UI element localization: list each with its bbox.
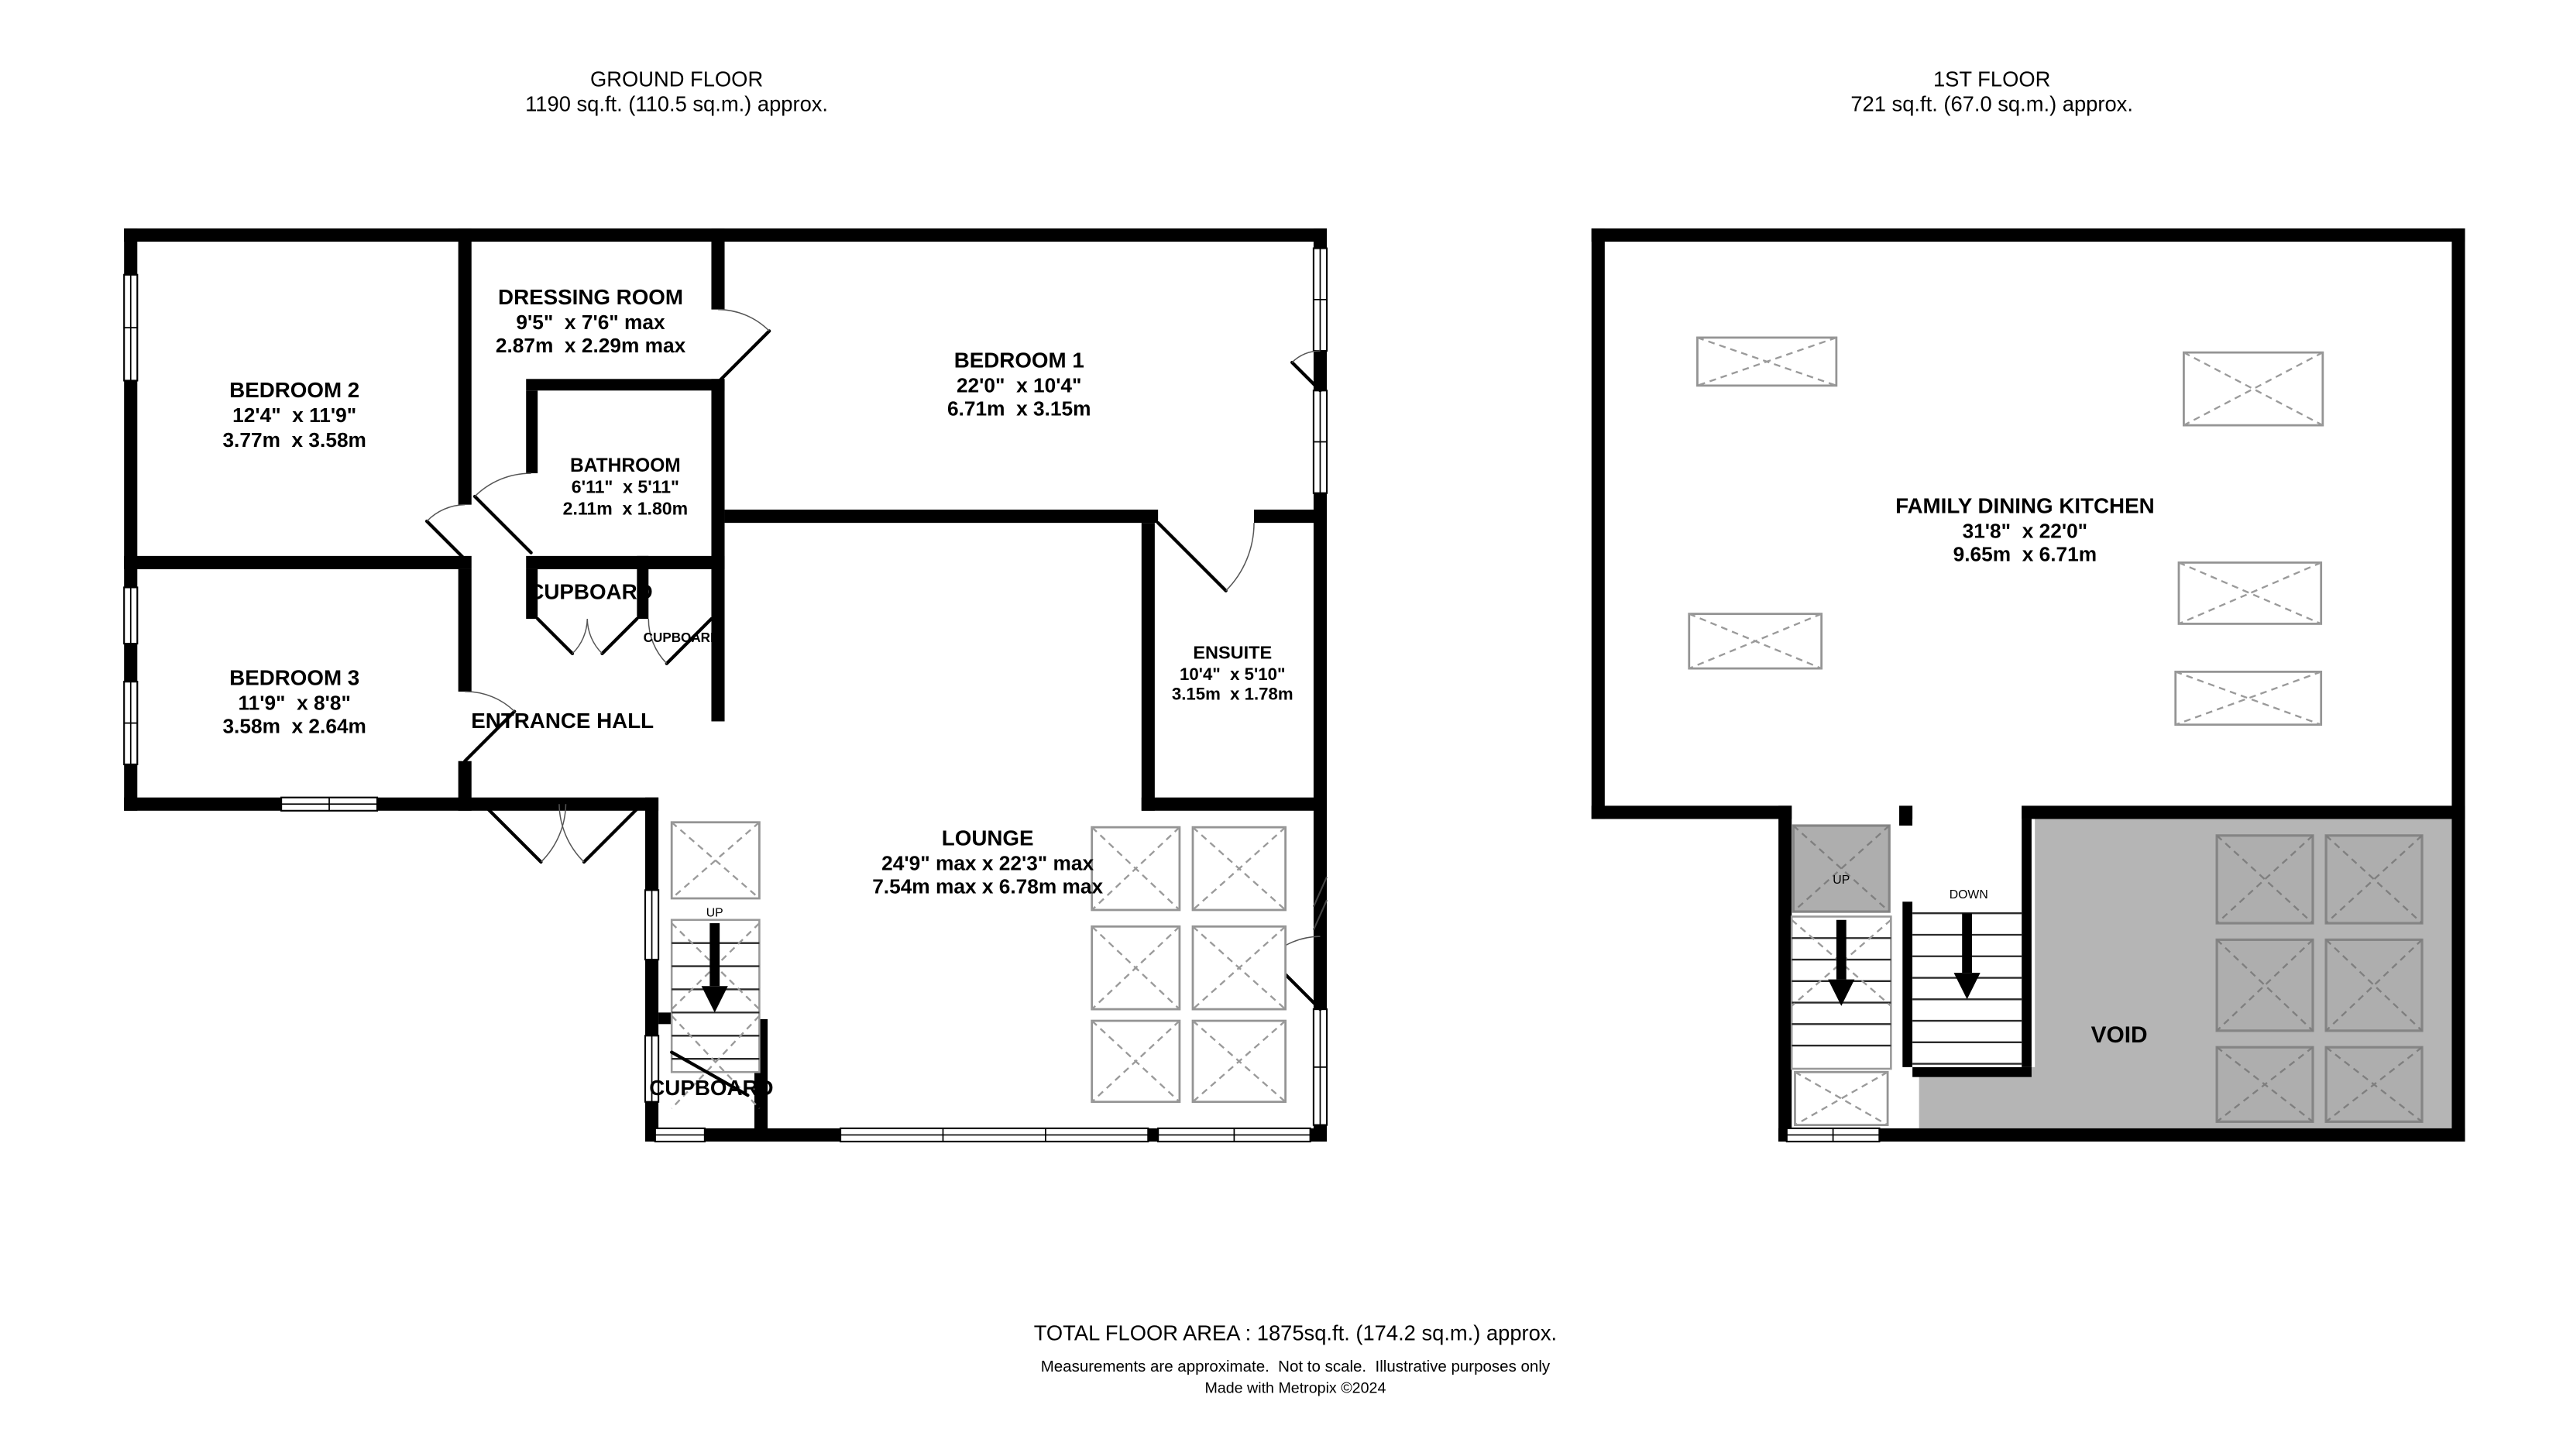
window: [124, 275, 137, 381]
room-label-family-dining-kitchen: FAMILY DINING KITCHEN: [1895, 493, 2155, 517]
disclaimer-text: Measurements are approximate. Not to sca…: [1041, 1358, 1551, 1375]
room-dims-fdk-imperial: 31'8" x 22'0": [1963, 519, 2088, 542]
credit-text: Made with Metropix ©2024: [1204, 1380, 1386, 1397]
ground-floor-stairs: UP: [672, 822, 759, 1109]
room-label-dressing-room: DRESSING ROOM: [498, 285, 683, 309]
window: [645, 890, 658, 960]
skylight-box: [1193, 1021, 1286, 1102]
page-background: [0, 0, 2556, 1456]
room-dims-ensuite-metric: 3.15m x 1.78m: [1172, 685, 1293, 704]
skylight-box: [2179, 562, 2321, 623]
room-label-cupboard-hall: CUPBOARD: [528, 579, 652, 603]
first-floor-title-text: 1ST FLOOR: [1933, 67, 2050, 91]
skylight-box-gray: [2326, 939, 2422, 1030]
window: [1787, 1128, 1880, 1142]
room-dims-bedroom3-imperial: 11'9" x 8'8": [238, 692, 351, 715]
ground-floor-title-text: GROUND FLOOR: [590, 67, 763, 91]
room-dims-bedroom3-metric: 3.58m x 2.64m: [222, 714, 366, 737]
floorplan-page: GROUND FLOOR 1190 sq.ft. (110.5 sq.m.) a…: [0, 0, 2556, 1456]
room-dims-bedroom1-metric: 6.71m x 3.15m: [947, 397, 1091, 420]
skylight-box-gray: [2217, 939, 2313, 1030]
ground-floor-area-text: 1190 sq.ft. (110.5 sq.m.) approx.: [525, 91, 828, 115]
skylight-box: [1092, 827, 1180, 910]
room-dims-bathroom-imperial: 6'11" x 5'11": [572, 477, 679, 497]
skylight-box-gray: [2217, 1047, 2313, 1121]
window: [840, 1128, 1148, 1142]
room-dims-lounge-metric: 7.54m max x 6.78m max: [872, 875, 1103, 898]
window: [281, 798, 377, 811]
room-dims-bedroom2-imperial: 12'4" x 11'9": [232, 403, 356, 427]
skylight-box: [1697, 338, 1836, 386]
room-label-lounge: LOUNGE: [942, 826, 1034, 850]
room-dims-bedroom2-metric: 3.77m x 3.58m: [222, 428, 366, 452]
stairs-down-label: DOWN: [1950, 888, 1988, 901]
room-dims-bedroom1-imperial: 22'0" x 10'4": [957, 373, 1082, 397]
room-label-bathroom: BATHROOM: [570, 455, 681, 476]
total-floor-area-text: TOTAL FLOOR AREA : 1875sq.ft. (174.2 sq.…: [1034, 1320, 1557, 1344]
room-dims-lounge-imperial: 24'9" max x 22'3" max: [881, 852, 1094, 875]
room-dims-bathroom-metric: 2.11m x 1.80m: [563, 498, 688, 518]
skylight-box-gray: [2326, 836, 2422, 923]
window: [1314, 249, 1327, 351]
room-label-bedroom1: BEDROOM 1: [954, 348, 1084, 372]
window: [655, 1128, 705, 1142]
room-dims-dressing-imperial: 9'5" x 7'6" max: [516, 311, 665, 334]
skylight-box: [672, 822, 759, 898]
room-label-bedroom3: BEDROOM 3: [229, 665, 359, 689]
window: [124, 682, 137, 764]
room-label-ensuite: ENSUITE: [1193, 642, 1272, 662]
skylight-box: [2183, 352, 2322, 425]
room-dims-dressing-metric: 2.87m x 2.29m max: [496, 334, 686, 357]
window: [1158, 1128, 1311, 1142]
skylight-box: [1193, 827, 1286, 910]
room-dims-fdk-metric: 9.65m x 6.71m: [1953, 542, 2097, 565]
stairs-up-label: UP: [1833, 874, 1850, 887]
first-floor-stairs-down: DOWN: [1912, 819, 2022, 1066]
room-dims-ensuite-imperial: 10'4" x 5'10": [1180, 664, 1286, 684]
skylight-box-gray: [2326, 1047, 2422, 1121]
first-floor-area-text: 721 sq.ft. (67.0 sq.m.) approx.: [1850, 91, 2133, 115]
stairs-up-label: UP: [706, 906, 723, 919]
skylight-box-gray: [1793, 826, 1889, 912]
room-label-cupboard-small: CUPBOARD: [644, 630, 720, 645]
room-label-void: VOID: [2091, 1022, 2148, 1048]
floorplan-drawing: GROUND FLOOR 1190 sq.ft. (110.5 sq.m.) a…: [0, 0, 2556, 1456]
skylight-box: [1092, 1021, 1180, 1102]
skylight-box: [1193, 926, 1286, 1009]
room-label-bedroom2: BEDROOM 2: [229, 378, 359, 402]
window: [1314, 390, 1327, 493]
skylight-box: [1092, 926, 1180, 1009]
skylight-box: [2176, 671, 2321, 724]
window: [1314, 1009, 1327, 1125]
skylight-box-gray: [2217, 836, 2313, 923]
room-label-cupboard-lounge: CUPBOARD: [649, 1076, 773, 1100]
skylight-box: [1689, 614, 1822, 668]
window: [124, 587, 137, 644]
room-label-entrance-hall: ENTRANCE HALL: [471, 709, 654, 733]
